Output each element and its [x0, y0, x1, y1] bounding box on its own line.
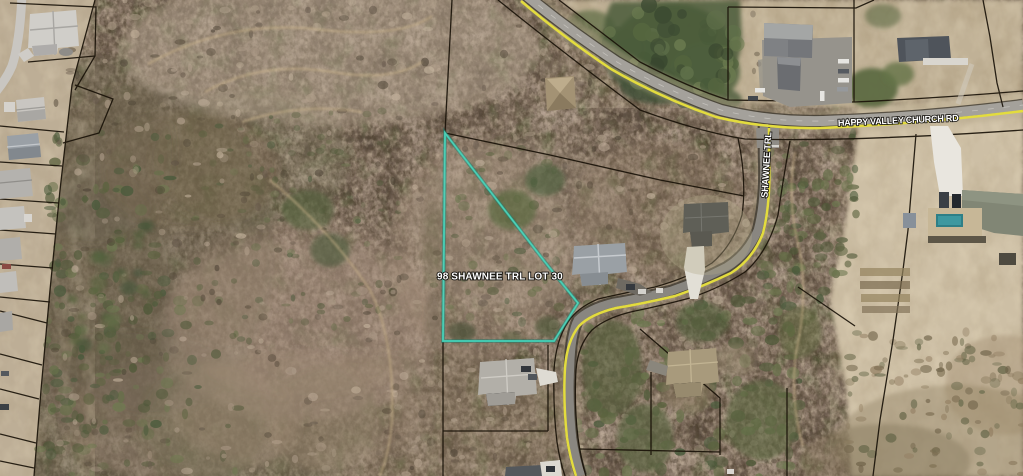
svg-text:98 SHAWNEE TRL LOT 30: 98 SHAWNEE TRL LOT 30 — [437, 272, 563, 283]
